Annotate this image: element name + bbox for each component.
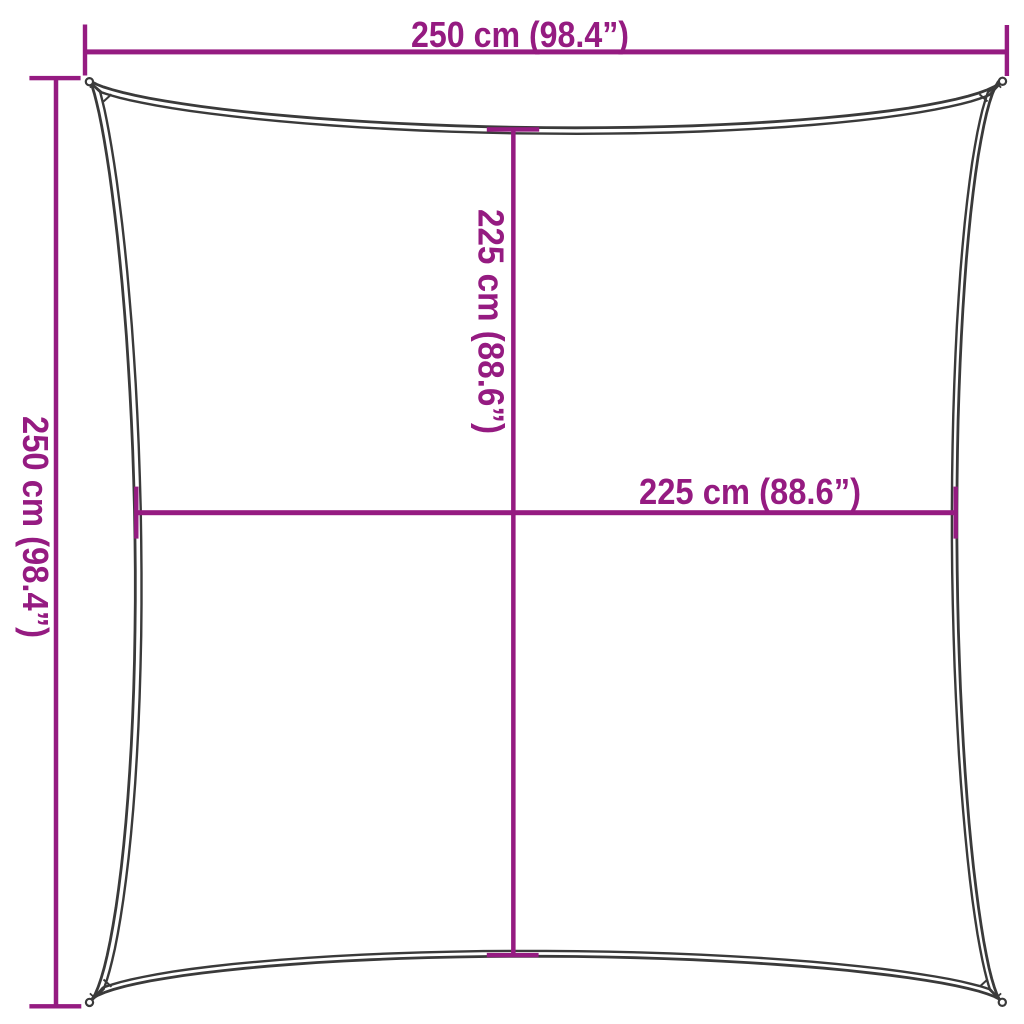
svg-text:250 cm (98.4”): 250 cm (98.4”) [15, 416, 56, 638]
svg-text:225 cm (88.6”): 225 cm (88.6”) [639, 471, 861, 512]
svg-text:250 cm (98.4”): 250 cm (98.4”) [411, 14, 629, 55]
svg-text:225 cm (88.6”): 225 cm (88.6”) [471, 209, 512, 434]
